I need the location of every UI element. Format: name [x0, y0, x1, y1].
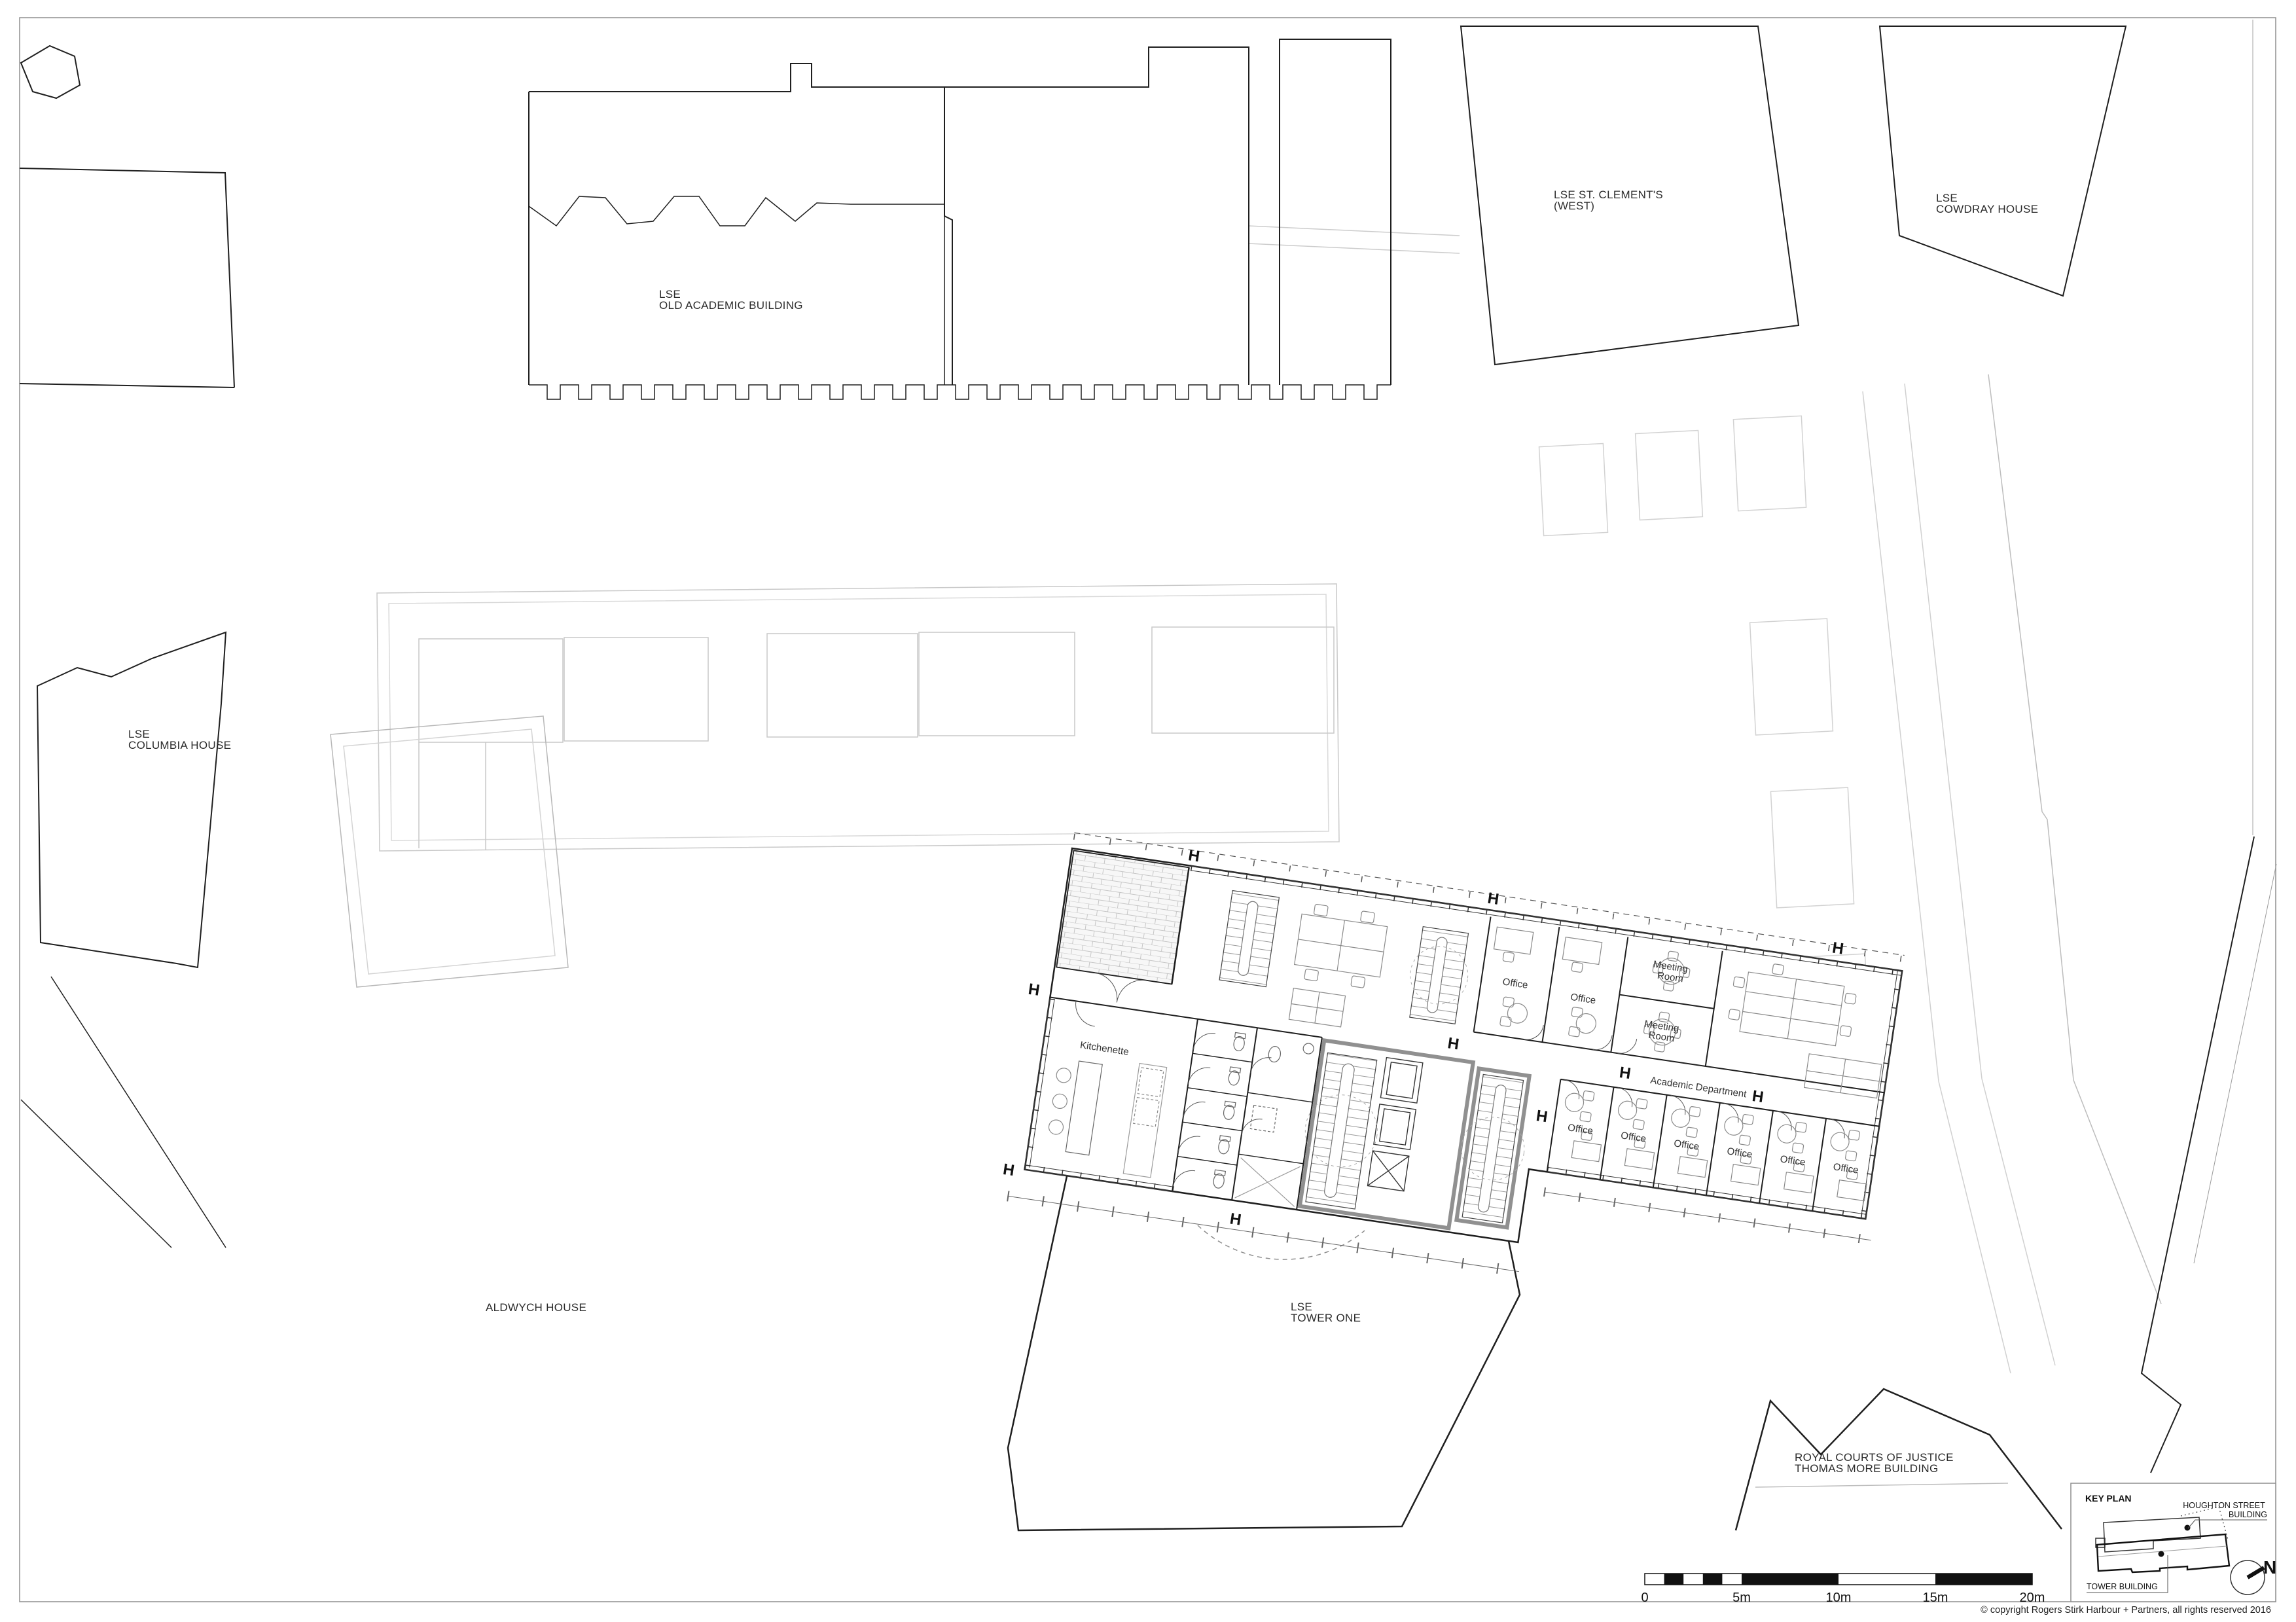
- key-plan-tower-label: TOWER BUILDING: [2087, 1582, 2158, 1591]
- column-marker: H: [1002, 1161, 1016, 1180]
- northwest-block-outline: [20, 168, 234, 387]
- key-plan: KEY PLAN HOUGHTON STREET BUILDING TOWER …: [2071, 1483, 2276, 1602]
- street-edge: [21, 1100, 171, 1248]
- drawing-sheet: Kitchenette Office Office Meeting Room M…: [0, 0, 2296, 1622]
- copyright-text: © copyright Rogers Stirk Harbour + Partn…: [1981, 1605, 2271, 1615]
- context-buildings: [20, 26, 2276, 1530]
- scale-tick-0: 0: [1641, 1591, 1648, 1605]
- aldwych-label: ALDWYCH HOUSE: [486, 1301, 586, 1314]
- cowdray-house-outline: [1880, 26, 2126, 296]
- cowdray-label: LSE COWDRAY HOUSE: [1936, 192, 2038, 215]
- column-marker: H: [1187, 846, 1201, 865]
- old-academic-building-outline: [529, 39, 1391, 399]
- east-wedge-outline: [2142, 837, 2254, 1473]
- corner-building-outline: [21, 46, 80, 98]
- columbia-label: LSE COLUMBIA HOUSE: [128, 728, 231, 751]
- scale-bar: 0 5m 10m 15m 20m: [1641, 1574, 2045, 1605]
- old-academic-label: LSE OLD ACADEMIC BUILDING: [659, 288, 803, 312]
- houghton-street-building-roof-outline: [377, 584, 1339, 851]
- site-labels: LSE OLD ACADEMIC BUILDING LSE ST. CLEMEN…: [128, 189, 2038, 1475]
- st-clements-label: LSE ST. CLEMENT'S (WEST): [1554, 189, 1666, 212]
- key-plan-title: KEY PLAN: [2085, 1493, 2132, 1504]
- north-label: N: [2263, 1557, 2276, 1577]
- scale-tick-15m: 15m: [1923, 1591, 1948, 1605]
- column-marker: H: [1229, 1210, 1242, 1229]
- column-marker: H: [1486, 890, 1500, 909]
- page-border: [20, 18, 2276, 1602]
- royal-courts-label: ROYAL COURTS OF JUSTICE THOMAS MORE BUIL…: [1795, 1451, 1957, 1475]
- tower-one-label: LSE TOWER ONE: [1291, 1301, 1361, 1324]
- aldwych-north-wing-outline: [331, 716, 568, 987]
- scale-tick-5m: 5m: [1732, 1591, 1751, 1605]
- site-plan-drawing: Kitchenette Office Office Meeting Room M…: [0, 0, 2296, 1622]
- street-lines: [1248, 20, 2253, 1487]
- columbia-house-outline: [37, 632, 226, 967]
- scale-tick-10m: 10m: [1826, 1591, 1852, 1605]
- canopy-dashed-line: [1198, 1225, 1365, 1259]
- street-edge: [51, 977, 226, 1248]
- scale-tick-20m: 20m: [2020, 1591, 2045, 1605]
- column-marker: H: [1027, 981, 1041, 1000]
